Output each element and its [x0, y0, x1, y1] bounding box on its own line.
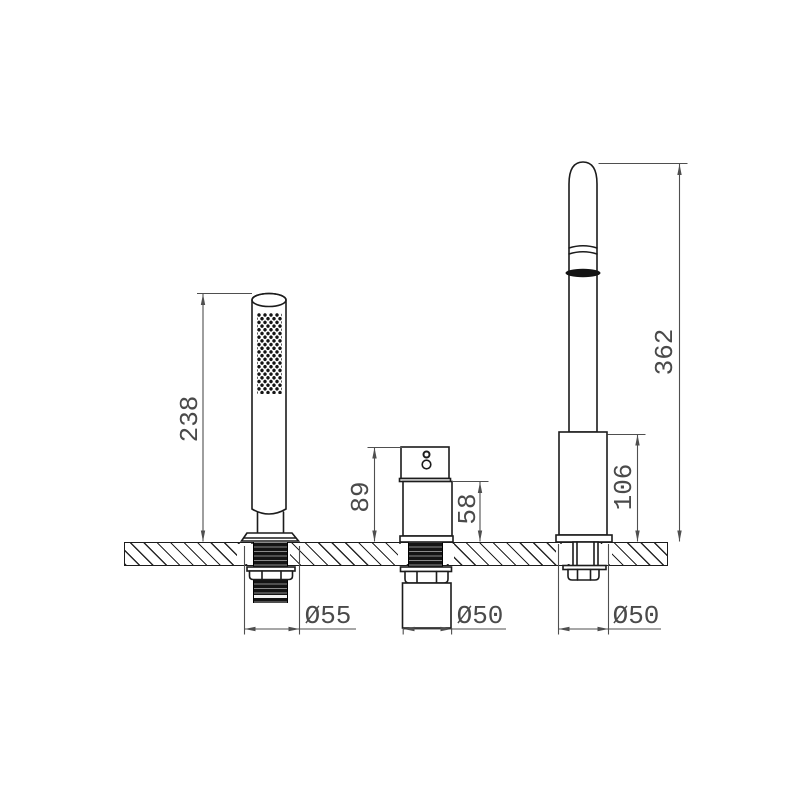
dimension-spout-base-diameter: Ø50: [604, 602, 668, 630]
spout-outline: [556, 162, 612, 580]
dimension-hand-shower-height: 238: [176, 387, 204, 451]
mixer-valve-outline: [400, 447, 454, 628]
spout-outlet: [566, 269, 601, 277]
hand-shower-spray-face: [257, 313, 282, 394]
drawing-linework: [0, 0, 800, 800]
dimension-spout-body-height: 106: [610, 455, 638, 519]
dimension-valve-base-diameter: Ø50: [448, 602, 512, 630]
dimension-valve-height: 89: [347, 465, 375, 529]
dimension-valve-body-height: 58: [454, 477, 482, 541]
dimension-hand-shower-base-diameter: Ø55: [296, 602, 360, 630]
dimension-spout-height: 362: [651, 320, 679, 384]
technical-drawing-canvas: 238 89 58 106 362 Ø55 Ø50 Ø50: [0, 0, 800, 800]
